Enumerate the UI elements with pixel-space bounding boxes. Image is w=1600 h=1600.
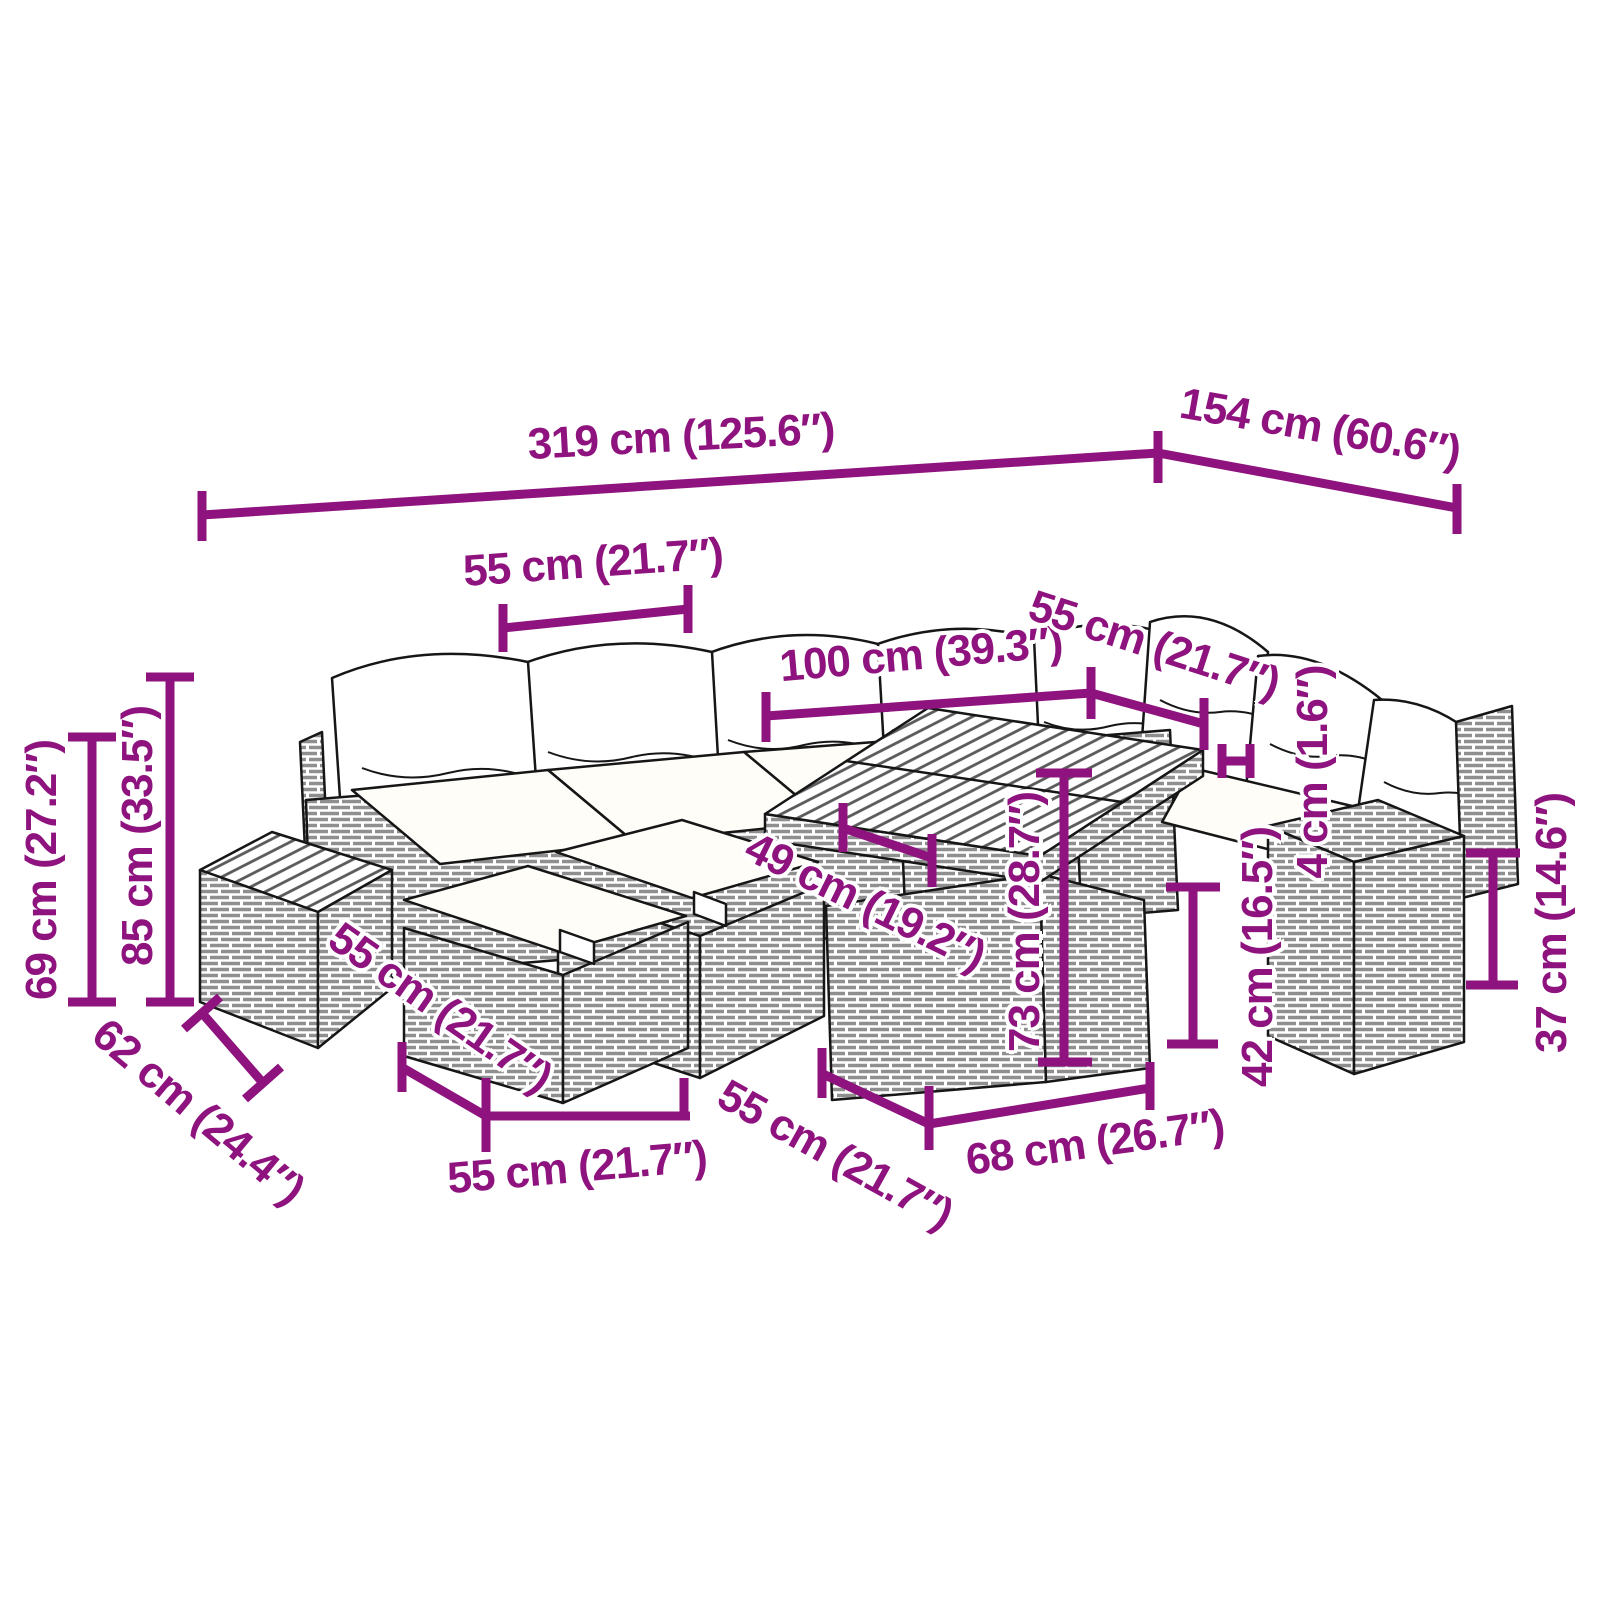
dimension-label-85cm: 85 cm (33.5″) <box>116 706 160 966</box>
table-base-side <box>1040 874 1150 1082</box>
dimension-label-69cm: 69 cm (27.2″) <box>20 740 64 1000</box>
dimension-label-73cm: 73 cm (28.7″) <box>1003 792 1047 1052</box>
dimension-line-69cm <box>68 737 116 1002</box>
dimension-label-42cm: 42 cm (16.5″) <box>1236 827 1280 1087</box>
diagram-artwork <box>0 0 1600 1600</box>
dimension-diagram: 319 cm (125.6″) 154 cm (60.6″) 55 cm (21… <box>0 0 1600 1600</box>
sofa-end-panel <box>1456 706 1518 898</box>
dimension-line-55cm-top <box>503 585 688 652</box>
dimension-label-37cm: 37 cm (14.6″) <box>1530 793 1574 1053</box>
dimension-label-4cm: 4 cm (1.6″) <box>1291 665 1335 878</box>
